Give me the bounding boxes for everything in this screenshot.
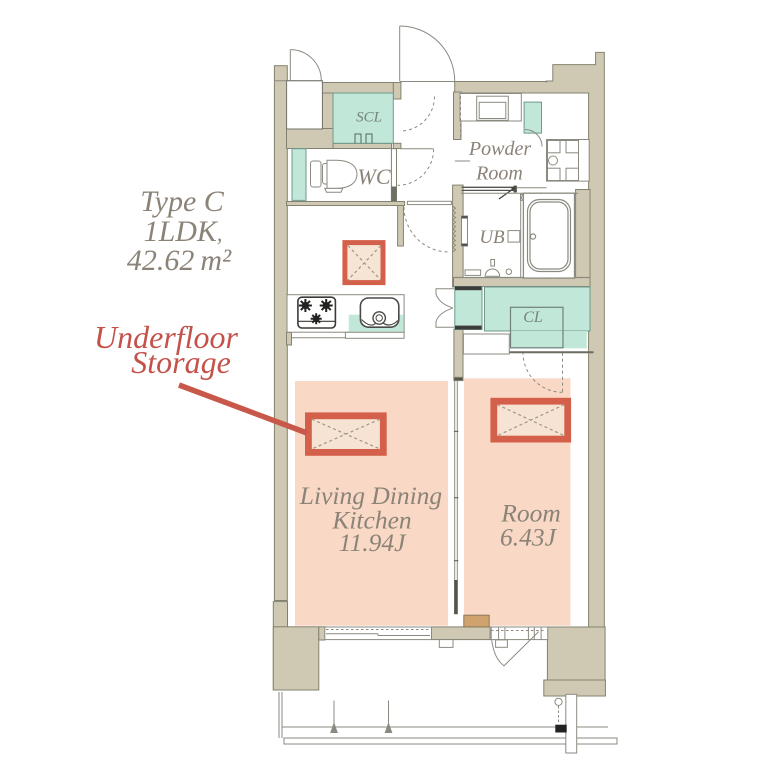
svg-text:6.43J: 6.43J (500, 523, 558, 552)
svg-text:Powder: Powder (468, 138, 531, 160)
svg-text:CL: CL (523, 309, 543, 326)
svg-text:Type C: Type C (140, 185, 225, 218)
svg-text:SCL: SCL (356, 110, 382, 126)
svg-text:11.94J: 11.94J (339, 528, 407, 557)
svg-text:UB: UB (479, 227, 505, 248)
svg-text:Storage: Storage (131, 344, 231, 380)
svg-text:Room: Room (475, 163, 523, 185)
svg-text:WC: WC (358, 164, 391, 189)
svg-text:42.62 m²: 42.62 m² (127, 244, 232, 277)
